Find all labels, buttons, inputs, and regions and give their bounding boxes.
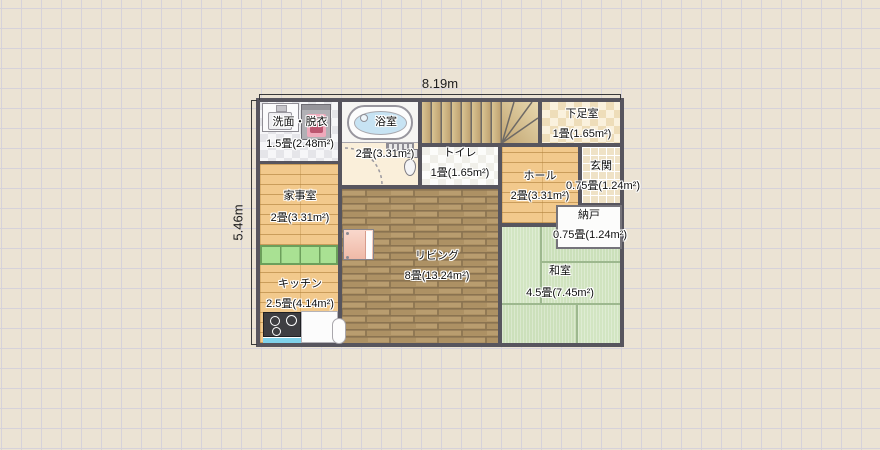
wall — [498, 145, 502, 343]
room-toilet-size: 1畳(1.65m²) — [431, 167, 490, 179]
width-dimension-tick-left — [259, 94, 260, 100]
stove-blue-strip — [263, 337, 301, 343]
room-toilet-label: トイレ — [444, 147, 477, 159]
stair-treads — [422, 102, 502, 143]
stove-burner-icon — [286, 315, 297, 326]
caster-dot — [346, 256, 349, 259]
room-nando-label: 納戸 — [578, 209, 600, 221]
room-shoe-label: 下足室 — [566, 108, 599, 120]
width-dimension-tick-right — [620, 94, 621, 100]
room-shoe-size: 1畳(1.65m²) — [553, 128, 612, 140]
green-cabinet-counter-icon[interactable] — [260, 245, 338, 265]
piano-cabinet-icon[interactable] — [343, 229, 374, 260]
wall — [538, 102, 542, 147]
kitchen-sink-icon[interactable] — [332, 318, 346, 344]
room-senmen-size: 1.5畳(2.48m²) — [266, 138, 334, 150]
room-living-label: リビング — [415, 250, 459, 262]
stove-burner-icon — [270, 316, 280, 326]
room-bath-label: 浴室 — [375, 116, 397, 128]
canvas-background: { "app": { "view": "floor-plan-canvas" }… — [0, 0, 880, 450]
room-nando-size: 0.75畳(1.24m²) — [553, 229, 627, 241]
washer-lid-strip — [302, 105, 330, 110]
room-senmen-label: 洗面・脱衣 — [273, 116, 328, 128]
room-genkan[interactable] — [582, 147, 620, 203]
stair-winders — [502, 102, 538, 143]
gas-stove-icon[interactable] — [263, 312, 301, 337]
room-bath-size: 2畳(3.31m²) — [356, 148, 415, 160]
faucet-icon — [276, 105, 287, 112]
room-hall-size: 2畳(3.31m²) — [511, 190, 570, 202]
room-living[interactable] — [342, 189, 498, 343]
room-living-size: 8畳(13.24m²) — [405, 270, 470, 282]
tatami-mat — [502, 305, 576, 343]
floor-plan: 洗面・脱衣 1.5畳(2.48m²) 浴室 2畳(3.31m²) トイレ 1畳(… — [256, 98, 624, 347]
room-kaji-size: 2畳(3.31m²) — [271, 212, 330, 224]
height-dimension-tick-bottom — [251, 344, 257, 345]
width-dimension-line — [259, 94, 621, 95]
room-washitsu-label: 和室 — [549, 265, 571, 277]
caster-dot — [346, 232, 349, 235]
staircase[interactable] — [422, 102, 538, 143]
tatami-mat — [578, 305, 620, 343]
piano-key-panel — [365, 231, 372, 259]
height-dimension-label: 5.46m — [231, 203, 246, 243]
room-kaji[interactable] — [260, 164, 338, 245]
width-dimension-label: 8.19m — [422, 76, 458, 91]
room-kaji-label: 家事室 — [284, 190, 317, 202]
wall — [338, 185, 502, 189]
bathtub-drain-icon — [360, 114, 368, 122]
room-washitsu-size: 4.5畳(7.45m²) — [526, 287, 594, 299]
room-genkan-label: 玄関 — [590, 160, 612, 172]
room-kitchen-size: 2.5畳(4.14m²) — [266, 298, 334, 310]
living-floor-pattern — [342, 189, 498, 343]
room-genkan-size: 0.75畳(1.24m²) — [566, 180, 640, 192]
height-dimension-line — [251, 100, 252, 345]
room-hall-label: ホール — [524, 170, 557, 182]
room-kitchen[interactable] — [260, 245, 338, 343]
wall — [338, 102, 342, 343]
wall — [260, 161, 340, 164]
height-dimension-tick-top — [251, 100, 257, 101]
room-kitchen-label: キッチン — [278, 278, 322, 290]
stove-burner-icon — [272, 327, 281, 336]
